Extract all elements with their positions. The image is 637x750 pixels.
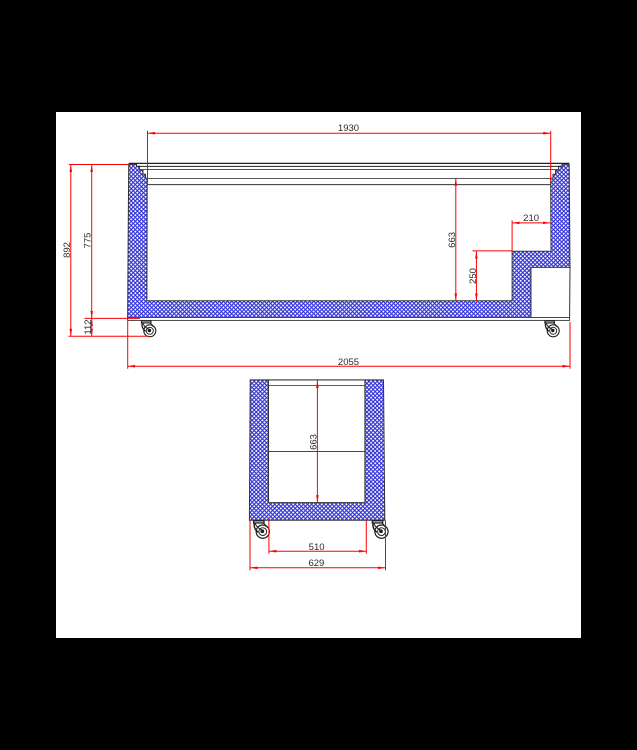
- svg-text:663: 663: [308, 434, 319, 450]
- svg-text:510: 510: [309, 542, 325, 553]
- svg-text:2055: 2055: [338, 357, 359, 368]
- svg-text:775: 775: [83, 233, 94, 249]
- svg-text:210: 210: [523, 213, 539, 224]
- svg-text:629: 629: [308, 558, 324, 569]
- svg-text:250: 250: [468, 268, 479, 284]
- svg-text:1930: 1930: [338, 123, 359, 134]
- svg-text:892: 892: [62, 242, 73, 258]
- svg-text:112: 112: [83, 319, 94, 334]
- svg-text:663: 663: [447, 232, 458, 248]
